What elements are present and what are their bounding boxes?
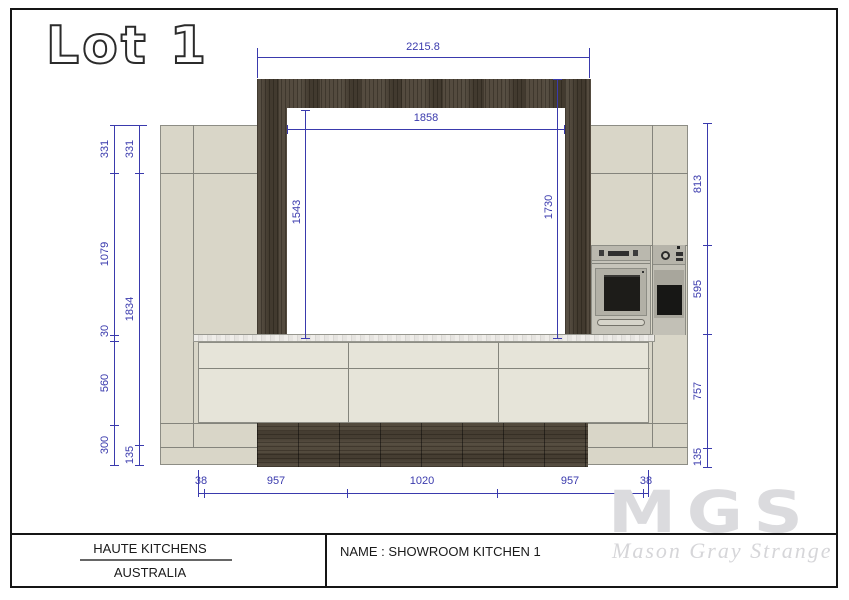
dim-label: 300 xyxy=(99,436,111,454)
countertop xyxy=(193,334,655,342)
oven-door xyxy=(595,268,647,316)
oven-indicator-dot xyxy=(642,271,644,273)
dim-label: 595 xyxy=(692,280,704,298)
dim-tick xyxy=(703,123,712,124)
dim-label: 331 xyxy=(99,140,111,158)
dim-label-top-outer: 2215.8 xyxy=(406,41,440,53)
dim-tick xyxy=(135,465,144,466)
dim-tick xyxy=(564,125,565,134)
drawer-divider-v xyxy=(348,343,349,424)
oven-handle xyxy=(597,319,645,326)
dim-label: 560 xyxy=(99,374,111,392)
dim-label: 757 xyxy=(692,382,704,400)
oven-button xyxy=(676,252,683,256)
dim-tick xyxy=(497,489,498,498)
dim-tick xyxy=(703,334,712,335)
dim-tick xyxy=(553,338,562,339)
drawing-page: Lot 1 xyxy=(0,0,849,600)
titleblock-divider xyxy=(325,533,327,588)
oven-button xyxy=(633,250,638,256)
oven-indicator-dot xyxy=(677,246,680,249)
oven-display xyxy=(608,251,629,256)
dim-line xyxy=(305,110,306,339)
dim-tick xyxy=(110,125,147,126)
dim-label-opening-height-right: 1730 xyxy=(543,195,555,219)
dim-label: 813 xyxy=(692,175,704,193)
dim-tick xyxy=(287,125,288,134)
oven-button xyxy=(599,250,604,256)
dim-line xyxy=(287,129,565,130)
dim-tick xyxy=(703,245,712,246)
dim-tick xyxy=(110,173,119,174)
dim-tick xyxy=(204,489,205,498)
dim-extension-line xyxy=(257,48,258,78)
dim-line xyxy=(557,79,558,339)
dim-tick xyxy=(301,110,310,111)
wood-mantle-right-pillar xyxy=(565,79,591,339)
dim-tick xyxy=(110,465,119,466)
company-name: HAUTE KITCHENS xyxy=(60,541,240,556)
dim-label: 1020 xyxy=(410,475,434,487)
dim-label: 135 xyxy=(124,446,136,464)
mgs-logo: MGS xyxy=(608,478,813,546)
dim-label: 135 xyxy=(692,448,704,466)
company-underline xyxy=(80,559,232,561)
dim-label: 1834 xyxy=(124,297,136,321)
dim-tick xyxy=(135,445,144,446)
dim-tick xyxy=(301,338,310,339)
dim-label: 957 xyxy=(561,475,579,487)
dim-tick xyxy=(110,335,119,336)
oven-knob xyxy=(661,251,670,260)
compact-oven-door xyxy=(654,270,684,318)
dim-line xyxy=(257,57,590,58)
wall-oven xyxy=(591,245,651,335)
dim-tick xyxy=(135,173,144,174)
drawer-bank xyxy=(198,342,649,423)
oven-trim-line xyxy=(592,263,650,264)
dim-tick xyxy=(110,341,119,342)
dim-line xyxy=(707,123,708,468)
dim-tick xyxy=(553,79,562,80)
compact-oven xyxy=(653,245,686,335)
drawing-name: NAME : SHOWROOM KITCHEN 1 xyxy=(340,544,541,559)
oven-glass xyxy=(604,275,640,311)
dim-extension-line xyxy=(589,48,590,78)
dim-label-opening-width: 1858 xyxy=(414,112,438,124)
dim-tick xyxy=(703,448,712,449)
dim-line xyxy=(114,125,115,465)
dim-label-opening-height-left: 1543 xyxy=(291,200,303,224)
company-country: AUSTRALIA xyxy=(60,565,240,580)
dim-label: 30 xyxy=(99,325,111,337)
dim-line xyxy=(198,493,649,494)
oven-button xyxy=(676,258,683,261)
dim-label: 38 xyxy=(195,475,207,487)
dim-tick xyxy=(110,425,119,426)
drawer-divider-v xyxy=(498,343,499,424)
dim-label: 1079 xyxy=(99,242,111,266)
mgs-tagline: Mason Gray Strange xyxy=(612,538,833,564)
dim-label: 331 xyxy=(124,140,136,158)
drawer-divider-h xyxy=(199,368,650,369)
wood-base-panel xyxy=(257,423,588,467)
dim-tick xyxy=(347,489,348,498)
dim-label: 957 xyxy=(267,475,285,487)
dim-tick xyxy=(703,467,712,468)
wood-mantle-top xyxy=(257,79,590,108)
lot-title: Lot 1 xyxy=(46,16,209,76)
compact-oven-glass xyxy=(657,285,682,315)
splashback-opening xyxy=(287,108,565,339)
dim-line xyxy=(139,125,140,465)
wood-mantle-left-pillar xyxy=(257,79,287,339)
